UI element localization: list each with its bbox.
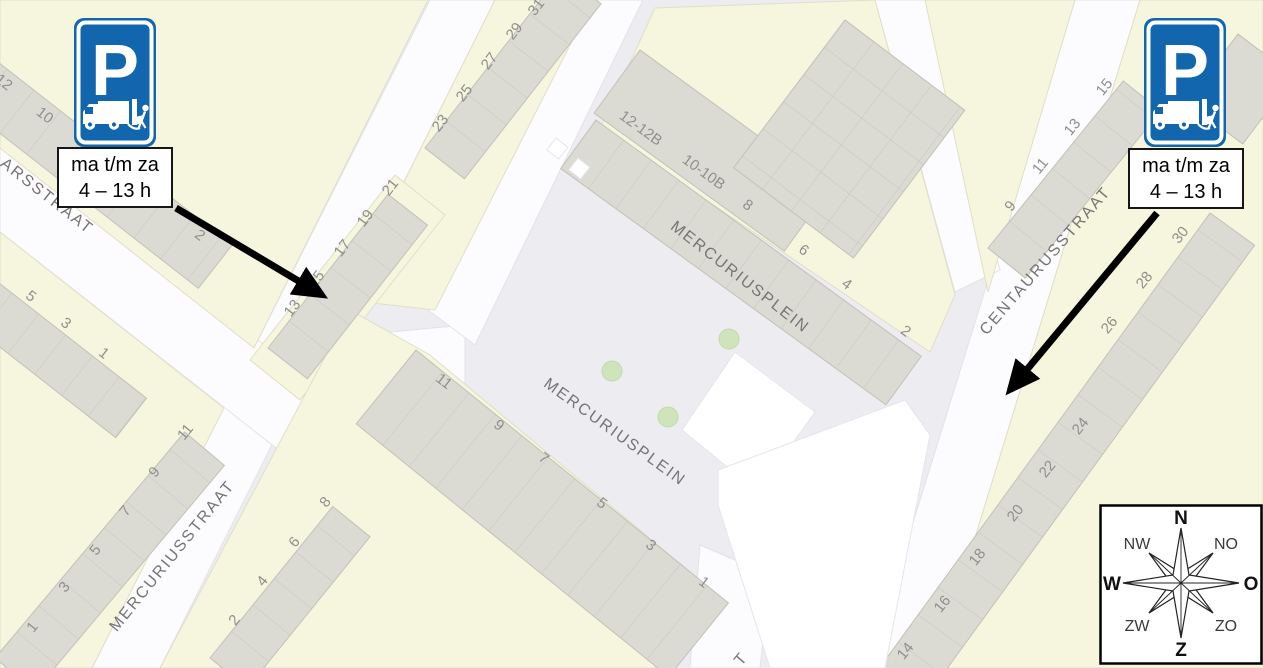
compass-label-w: W <box>1103 574 1121 595</box>
sign-time-plate-right: ma t/m za 4 – 13 h <box>1128 148 1244 209</box>
compass-label-n: N <box>1174 508 1188 529</box>
tree-icon <box>658 407 678 427</box>
parking-sign-right: P <box>1144 18 1226 147</box>
tree-icon <box>602 361 622 381</box>
sign-time-plate-left: ma t/m za 4 – 13 h <box>57 147 173 208</box>
map-figure: ARSSTRAAT MERCURIUSSTRAAT CENTAURUSSTRAA… <box>0 0 1263 668</box>
compass-label-nw: NW <box>1124 536 1152 553</box>
map-canvas: ARSSTRAAT MERCURIUSSTRAAT CENTAURUSSTRAA… <box>0 0 1263 668</box>
compass-label-zo: ZO <box>1215 618 1237 635</box>
sign-time-days: ma t/m za <box>1142 153 1230 179</box>
sign-p-letter: P <box>91 31 139 111</box>
sign-time-hours: 4 – 13 h <box>1150 179 1222 205</box>
compass-label-zw: ZW <box>1125 618 1151 635</box>
parking-sign-left: P <box>74 18 156 147</box>
sign-time-hours: 4 – 13 h <box>79 178 151 204</box>
sign-time-days: ma t/m za <box>71 152 159 178</box>
compass-label-z: Z <box>1175 640 1187 661</box>
sign-p-letter: P <box>1161 31 1209 111</box>
tree-icon <box>719 329 739 349</box>
compass-label-no: NO <box>1214 536 1238 553</box>
compass-rose: N NO O ZO Z ZW W NW <box>1101 506 1262 664</box>
compass-label-o: O <box>1244 574 1259 595</box>
